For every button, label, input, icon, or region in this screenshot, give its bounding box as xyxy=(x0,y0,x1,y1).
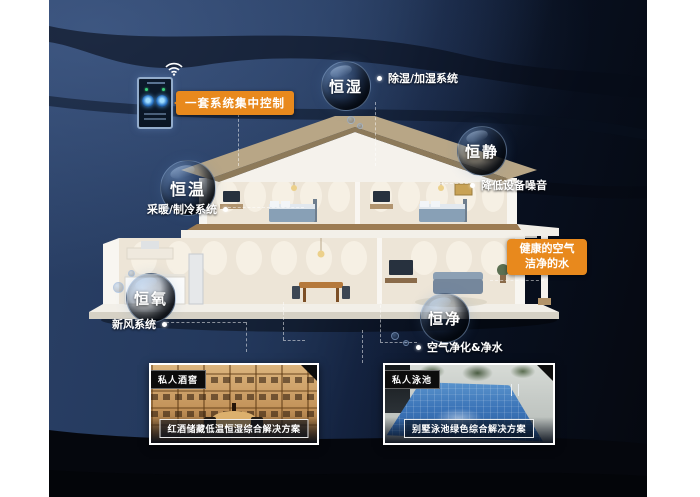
bubble-label: 恒净 xyxy=(428,308,462,329)
photo-tag: 私人泳池 xyxy=(385,370,440,389)
connector-line xyxy=(440,183,468,184)
label-fresh-air-system: 新风系统 xyxy=(112,316,167,332)
dial-icon xyxy=(142,95,154,107)
highlight-line1: 健康的空气 xyxy=(509,242,585,257)
bubble-label: 恒湿 xyxy=(329,76,363,97)
system-label-text: 降低设备噪音 xyxy=(481,177,547,193)
system-label-text: 空气净化&净水 xyxy=(427,339,503,355)
label-noise-reduction: 降低设备噪音 xyxy=(470,177,547,193)
label-dehumidify-system: 除湿/加湿系统 xyxy=(377,70,458,86)
bubble-label: 恒静 xyxy=(465,141,499,162)
corner-fold xyxy=(537,365,553,381)
panel-row xyxy=(144,113,166,115)
connector-dot xyxy=(416,345,421,350)
central-control-callout: 一套系统集中控制 xyxy=(176,91,294,115)
decorative-bubble xyxy=(403,340,409,346)
panel-row xyxy=(144,118,166,120)
connector-dot xyxy=(377,76,382,81)
highlight-line2: 洁净的水 xyxy=(509,257,585,272)
connector-line xyxy=(238,114,239,166)
bubble-label: 恒温 xyxy=(170,176,206,200)
connector-line xyxy=(362,330,363,363)
decorative-bubble xyxy=(357,123,363,129)
connector-line xyxy=(380,300,381,342)
panel-header xyxy=(147,82,165,84)
healthy-air-water-callout: 健康的空气 洁净的水 xyxy=(507,239,587,275)
system-label-text: 新风系统 xyxy=(112,316,156,332)
mid-floor-slab xyxy=(181,224,537,238)
decorative-bubble xyxy=(391,332,399,340)
decorative-bubble xyxy=(347,116,355,124)
system-label-text: 除湿/加湿系统 xyxy=(388,70,458,86)
decorative-bubble xyxy=(128,270,135,277)
pool-ladder xyxy=(511,384,519,396)
connector-line xyxy=(375,102,376,166)
wifi-icon xyxy=(165,61,183,76)
connector-line xyxy=(283,340,305,341)
connector-line xyxy=(228,207,304,208)
status-led-icon xyxy=(162,88,165,91)
control-panel-device xyxy=(137,77,173,129)
bubble-label: 恒氧 xyxy=(134,288,168,309)
photo-tag: 私人酒窖 xyxy=(151,370,206,389)
decorative-bubble xyxy=(113,282,124,293)
connector-line xyxy=(246,322,247,352)
bottle-row xyxy=(151,394,317,400)
connector-line xyxy=(490,280,544,281)
pool-photo: 私人泳池 别墅泳池绿色综合解决方案 xyxy=(383,363,555,445)
status-led-icon xyxy=(145,88,148,91)
connector-dot xyxy=(223,207,228,212)
photo-caption: 红酒储藏低温恒湿综合解决方案 xyxy=(159,419,308,438)
dial-icon xyxy=(156,95,168,107)
corner-fold xyxy=(301,365,317,381)
bubble-constant-quiet: 恒静 xyxy=(457,126,507,176)
label-air-water-purification: 空气净化&净水 xyxy=(416,339,503,355)
connector-dot xyxy=(470,183,475,188)
bubble-constant-humidity: 恒湿 xyxy=(321,61,371,111)
infographic-canvas: 一套系统集中控制 恒湿 恒静 恒温 恒氧 恒净 除湿/加湿系统 降低设备噪音 采… xyxy=(49,0,647,497)
bubble-constant-clean: 恒净 xyxy=(420,293,470,343)
photo-caption: 别墅泳池绿色综合解决方案 xyxy=(404,419,534,438)
label-heating-cooling-system: 采暖/制冷系统 xyxy=(147,201,228,217)
wine-cellar-photo: 私人酒窖 红酒储藏低温恒湿综合解决方案 xyxy=(149,363,319,445)
connector-line xyxy=(283,302,284,340)
central-control-label: 一套系统集中控制 xyxy=(185,96,285,110)
connector-dot xyxy=(162,322,167,327)
connector-line xyxy=(380,342,417,343)
system-label-text: 采暖/制冷系统 xyxy=(147,201,217,217)
connector-line xyxy=(166,322,246,323)
